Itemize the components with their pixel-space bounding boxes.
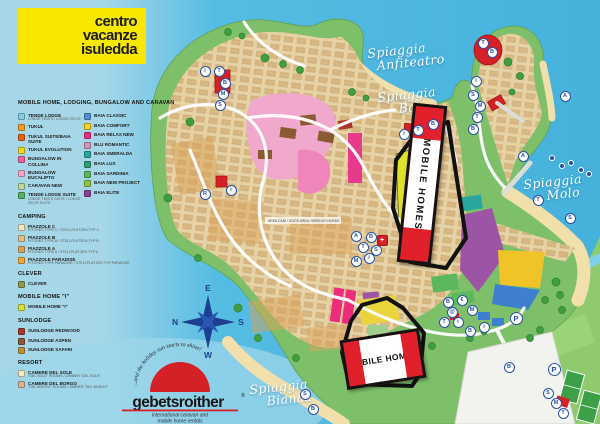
legend-swatch [84, 190, 91, 197]
facility-icon: B [465, 326, 476, 337]
facility-icon: T [533, 195, 544, 206]
facility-icon: i [399, 129, 410, 140]
legend-item-label: TUKUL EVOLUTION [28, 147, 72, 152]
legend-swatch [18, 134, 25, 141]
legend-item: CARAVAN NEW [18, 183, 82, 190]
legend-item: BAIA RELAX NEW [84, 132, 160, 139]
legend-swatch [84, 151, 91, 158]
facility-icon: A [560, 91, 571, 102]
legend-swatch [18, 304, 25, 311]
brand-line-3: isuledda [81, 43, 137, 57]
facility-icon: B [308, 404, 319, 415]
legend-swatch [18, 328, 25, 335]
legend-main-title: MOBILE HOME, LODGING, BUNGALOW AND CARAV… [18, 100, 183, 106]
legend-item: TENDE LODGE SUITELODGE TENTS SUITE / LOD… [18, 192, 82, 205]
legend-swatch [18, 224, 25, 231]
facility-icon: A [351, 231, 362, 242]
gebetsroither-logo: ...and the holiday sun starts to shine! … [110, 354, 250, 424]
legend-swatch [84, 113, 91, 120]
facility-icon: i [471, 76, 482, 87]
facility-icon: A [518, 151, 529, 162]
legend-item-label: CARAVAN NEW [28, 183, 62, 188]
legend-swatch [18, 381, 25, 388]
legend-item: BAIA CLASSIC [84, 113, 160, 120]
facility-icon: i [226, 185, 237, 196]
legend-item: TENDE LODGELODGE TENTS / LODGE ZELTE [18, 113, 82, 122]
legend-item-sublabel: "DEL BORGO" ROOMS / ZIMMER "DEL BORGO" [28, 386, 108, 390]
legend-item-label: MOBILE HOME "I" [28, 304, 68, 309]
legend-item: PIAZZOLE CPITCHES TYPE C / STELLPLÄTZEN … [18, 224, 138, 233]
legend-swatch [18, 347, 25, 354]
legend-item: SUNLODGE SAFARI [18, 347, 118, 354]
legend-item: PIAZZOLE BPITCHES TYPE B / STELLPLÄTZEN … [18, 235, 138, 244]
facility-icon: S [300, 389, 311, 400]
facility-icon: T [558, 408, 569, 419]
facility-icon: M [467, 305, 478, 316]
facility-icon: B [443, 297, 454, 308]
legend-item-label: CAMERE DEL BORGO"DEL BORGO" ROOMS / ZIMM… [28, 381, 108, 390]
facility-icon: @ [447, 307, 458, 318]
legend-swatch [84, 123, 91, 130]
facility-icon: T [214, 66, 225, 77]
facility-icon: T [358, 242, 369, 253]
legend-item: BAIA SMERALDA [84, 151, 160, 158]
legend-item-label: BAIA ELITE [94, 190, 119, 195]
area-cani-strip: AREA CANI / DOGS AREA / BEREICH HUNDE [265, 217, 341, 224]
banner-red-cap [400, 227, 431, 262]
legend-item-label: PIAZZOLE PARADISEPITCHES TYPE PARADISE /… [28, 257, 130, 266]
area-cani-label: AREA CANI / DOGS AREA / BEREICH HUNDE [268, 219, 340, 223]
banner-text: MOBILE HOMES [412, 138, 433, 230]
legend-swatch [18, 170, 25, 177]
facility-icon: R [200, 189, 211, 200]
facility-icon: i [364, 253, 375, 264]
beach-label-molo: Spiaggia Molo [523, 173, 584, 204]
legend-item: PIAZZOLE APITCHES TYPE A / STELLPLÄTZEN … [18, 246, 138, 255]
legend-swatch [18, 156, 25, 163]
facility-icon: M [551, 398, 562, 409]
legend-clever-title: CLEVER [18, 271, 42, 277]
legend-item: TUKUL SUITE/BAIA SUITE [18, 134, 82, 145]
legend-swatch [18, 370, 25, 377]
legend-item: TUKUL [18, 124, 82, 131]
facility-icon: T [478, 38, 489, 49]
registered-mark: ® [241, 392, 245, 399]
legend-item: SUNLODGE REDWOOD [18, 328, 118, 335]
legend-swatch [18, 246, 25, 253]
parking-icon: P [510, 312, 523, 325]
legend-swatch [18, 338, 25, 345]
legend-item-label: TENDE LODGE SUITELODGE TENTS SUITE / LOD… [28, 192, 82, 205]
legend-swatch [18, 124, 25, 131]
facility-icon: i [200, 66, 211, 77]
legend-item-label: BLU ROMANTIC [94, 142, 129, 147]
facility-icon: B [504, 362, 515, 373]
legend-item-sublabel: PITCHES TYPE A / STELLPLÄTZEN TYP A [28, 251, 98, 255]
facility-icon: i [479, 322, 490, 333]
legend-mobile-home-i-title: MOBILE HOME "I" [18, 294, 70, 300]
legend-item-label: PIAZZOLE APITCHES TYPE A / STELLPLÄTZEN … [28, 246, 98, 255]
legend-sunlodge-title: SUNLODGE [18, 318, 51, 324]
legend-item: BAIA ELITE [84, 190, 160, 197]
legend-item-label: BAIA RELAX NEW [94, 132, 134, 137]
legend-swatch [84, 171, 91, 178]
legend-swatch [18, 113, 25, 120]
facility-icon: M [475, 101, 486, 112]
legend-item-label: SUNLODGE REDWOOD [28, 328, 80, 333]
banner-white-band: MOBILE HOMES [358, 334, 407, 384]
legend-item-sublabel: LODGE TENTS / LODGE ZELTE [28, 118, 81, 122]
legend-item-label: TUKUL SUITE/BAIA SUITE [28, 134, 82, 145]
legend-item-label: BUNGALOW IN COLLINA [28, 156, 82, 167]
legend-item-label: PIAZZOLE BPITCHES TYPE B / STELLPLÄTZEN … [28, 235, 99, 244]
facility-icon: S [565, 213, 576, 224]
legend-swatch [18, 147, 25, 154]
facility-icon: T [413, 125, 424, 136]
legend-resort-title: RESORT [18, 360, 43, 366]
facility-icon: S [468, 90, 479, 101]
legend-item: BAIA SARDINIA [84, 171, 160, 178]
legend-swatch [84, 142, 91, 149]
legend-item-sublabel: "DEL SOLE" ROOMS / ZIMMER "DEL SOLE" [28, 375, 101, 379]
banner-white-band: MOBILE HOMES [403, 138, 440, 230]
legend-item-sublabel: PITCHES TYPE B / STELLPLÄTZEN TYP B [28, 240, 99, 244]
legend-item-label: TENDE LODGELODGE TENTS / LODGE ZELTE [28, 113, 81, 122]
legend-item-label: BUNGALOW EUCALIPTO [28, 170, 82, 181]
legend-item-sublabel: PITCHES TYPE C / STELLPLÄTZEN TYP C [28, 229, 99, 233]
legend-item-label: SUNLODGE ASPEN [28, 338, 71, 343]
legend-swatch [84, 132, 91, 139]
legend-item-label: BAIA NEW PROJECT [94, 180, 140, 185]
facility-icon: B [220, 78, 231, 89]
legend-item: BLU ROMANTIC [84, 142, 160, 149]
legend-column-2: BAIA CLASSICBAIA COMFORTBAIA RELAX NEWBL… [84, 113, 160, 199]
legend-swatch [84, 180, 91, 187]
sun-semicircle [150, 362, 210, 392]
facility-icon: T [439, 317, 450, 328]
facility-icon: B [366, 232, 377, 243]
legend-item-sublabel: PITCHES TYPE PARADISE / STELLPLÄTZEN TYP… [28, 262, 130, 266]
legend-clever-list: CLEVER [18, 281, 118, 291]
legend-item-label: BAIA LUX [94, 161, 116, 166]
legend-item-label: SUNLODGE SAFARI [28, 347, 72, 352]
logo-subtitle-2: mobile home rentals [157, 419, 203, 424]
legend-item: SUNLODGE ASPEN [18, 338, 118, 345]
legend-swatch [18, 235, 25, 242]
legend-item: MOBILE HOME "I" [18, 304, 118, 311]
compass-left-label: N [172, 317, 178, 327]
legend-swatch [18, 281, 25, 288]
legend-item: TUKUL EVOLUTION [18, 147, 82, 154]
legend-item: BAIA NEW PROJECT [84, 180, 160, 187]
legend-swatch [18, 183, 25, 190]
legend-item-label: PIAZZOLE CPITCHES TYPE C / STELLPLÄTZEN … [28, 224, 99, 233]
facility-icon: i [453, 317, 464, 328]
legend-swatch [18, 257, 25, 264]
logo-wordmark: gebetsroither [132, 394, 224, 411]
legend-item-label: BAIA COMFORT [94, 123, 130, 128]
legend-item: BAIA COMFORT [84, 123, 160, 130]
legend-item: CLEVER [18, 281, 118, 288]
legend-item: BUNGALOW EUCALIPTO [18, 170, 82, 181]
legend-swatch [18, 192, 25, 199]
facility-icon: S [215, 100, 226, 111]
legend-item-label: CLEVER [28, 281, 47, 286]
legend-column-1: TENDE LODGELODGE TENTS / LODGE ZELTETUKU… [18, 113, 82, 207]
compass-top-label: E [205, 283, 211, 293]
legend-item: BUNGALOW IN COLLINA [18, 156, 82, 167]
legend-mobile-home-i-list: MOBILE HOME "I" [18, 304, 118, 314]
legend-swatch [84, 161, 91, 168]
legend-camping-title: CAMPING [18, 214, 46, 220]
facility-icon: € [457, 295, 468, 306]
first-aid-icon: + [377, 235, 388, 246]
logo-rule [122, 410, 238, 412]
parking-icon: P [548, 363, 561, 376]
facility-icon: B [468, 124, 479, 135]
facility-icon: M [218, 89, 229, 100]
legend-item: PIAZZOLE PARADISEPITCHES TYPE PARADISE /… [18, 257, 138, 266]
facility-icon: B [428, 119, 439, 130]
banner-text: MOBILE HOMES [358, 348, 407, 369]
brand-logo-box: centro vacanze isuledda [18, 8, 146, 64]
facility-icon: S [543, 388, 554, 399]
compass-right-label: S [238, 317, 244, 327]
resort-map-page: AREA CANI / DOGS AREA / BEREICH HUNDE E … [0, 0, 600, 424]
legend-item-label: BAIA SARDINIA [94, 171, 129, 176]
legend-item-label: BAIA CLASSIC [94, 113, 127, 118]
legend-item-sublabel: LODGE TENTS SUITE / LODGE ZELTE SUITE [28, 198, 82, 206]
legend-camping-list: PIAZZOLE CPITCHES TYPE C / STELLPLÄTZEN … [18, 224, 138, 268]
facility-icon: M [351, 256, 362, 267]
facility-icon: B [487, 47, 498, 58]
legend-item: BAIA LUX [84, 161, 160, 168]
legend-item-label: TUKUL [28, 124, 44, 129]
facility-icon: T [472, 112, 483, 123]
legend-sunlodge-list: SUNLODGE REDWOODSUNLODGE ASPENSUNLODGE S… [18, 328, 118, 357]
legend-item-label: BAIA SMERALDA [94, 151, 132, 156]
legend-item-label: CAMERE DEL SOLE"DEL SOLE" ROOMS / ZIMMER… [28, 370, 101, 379]
